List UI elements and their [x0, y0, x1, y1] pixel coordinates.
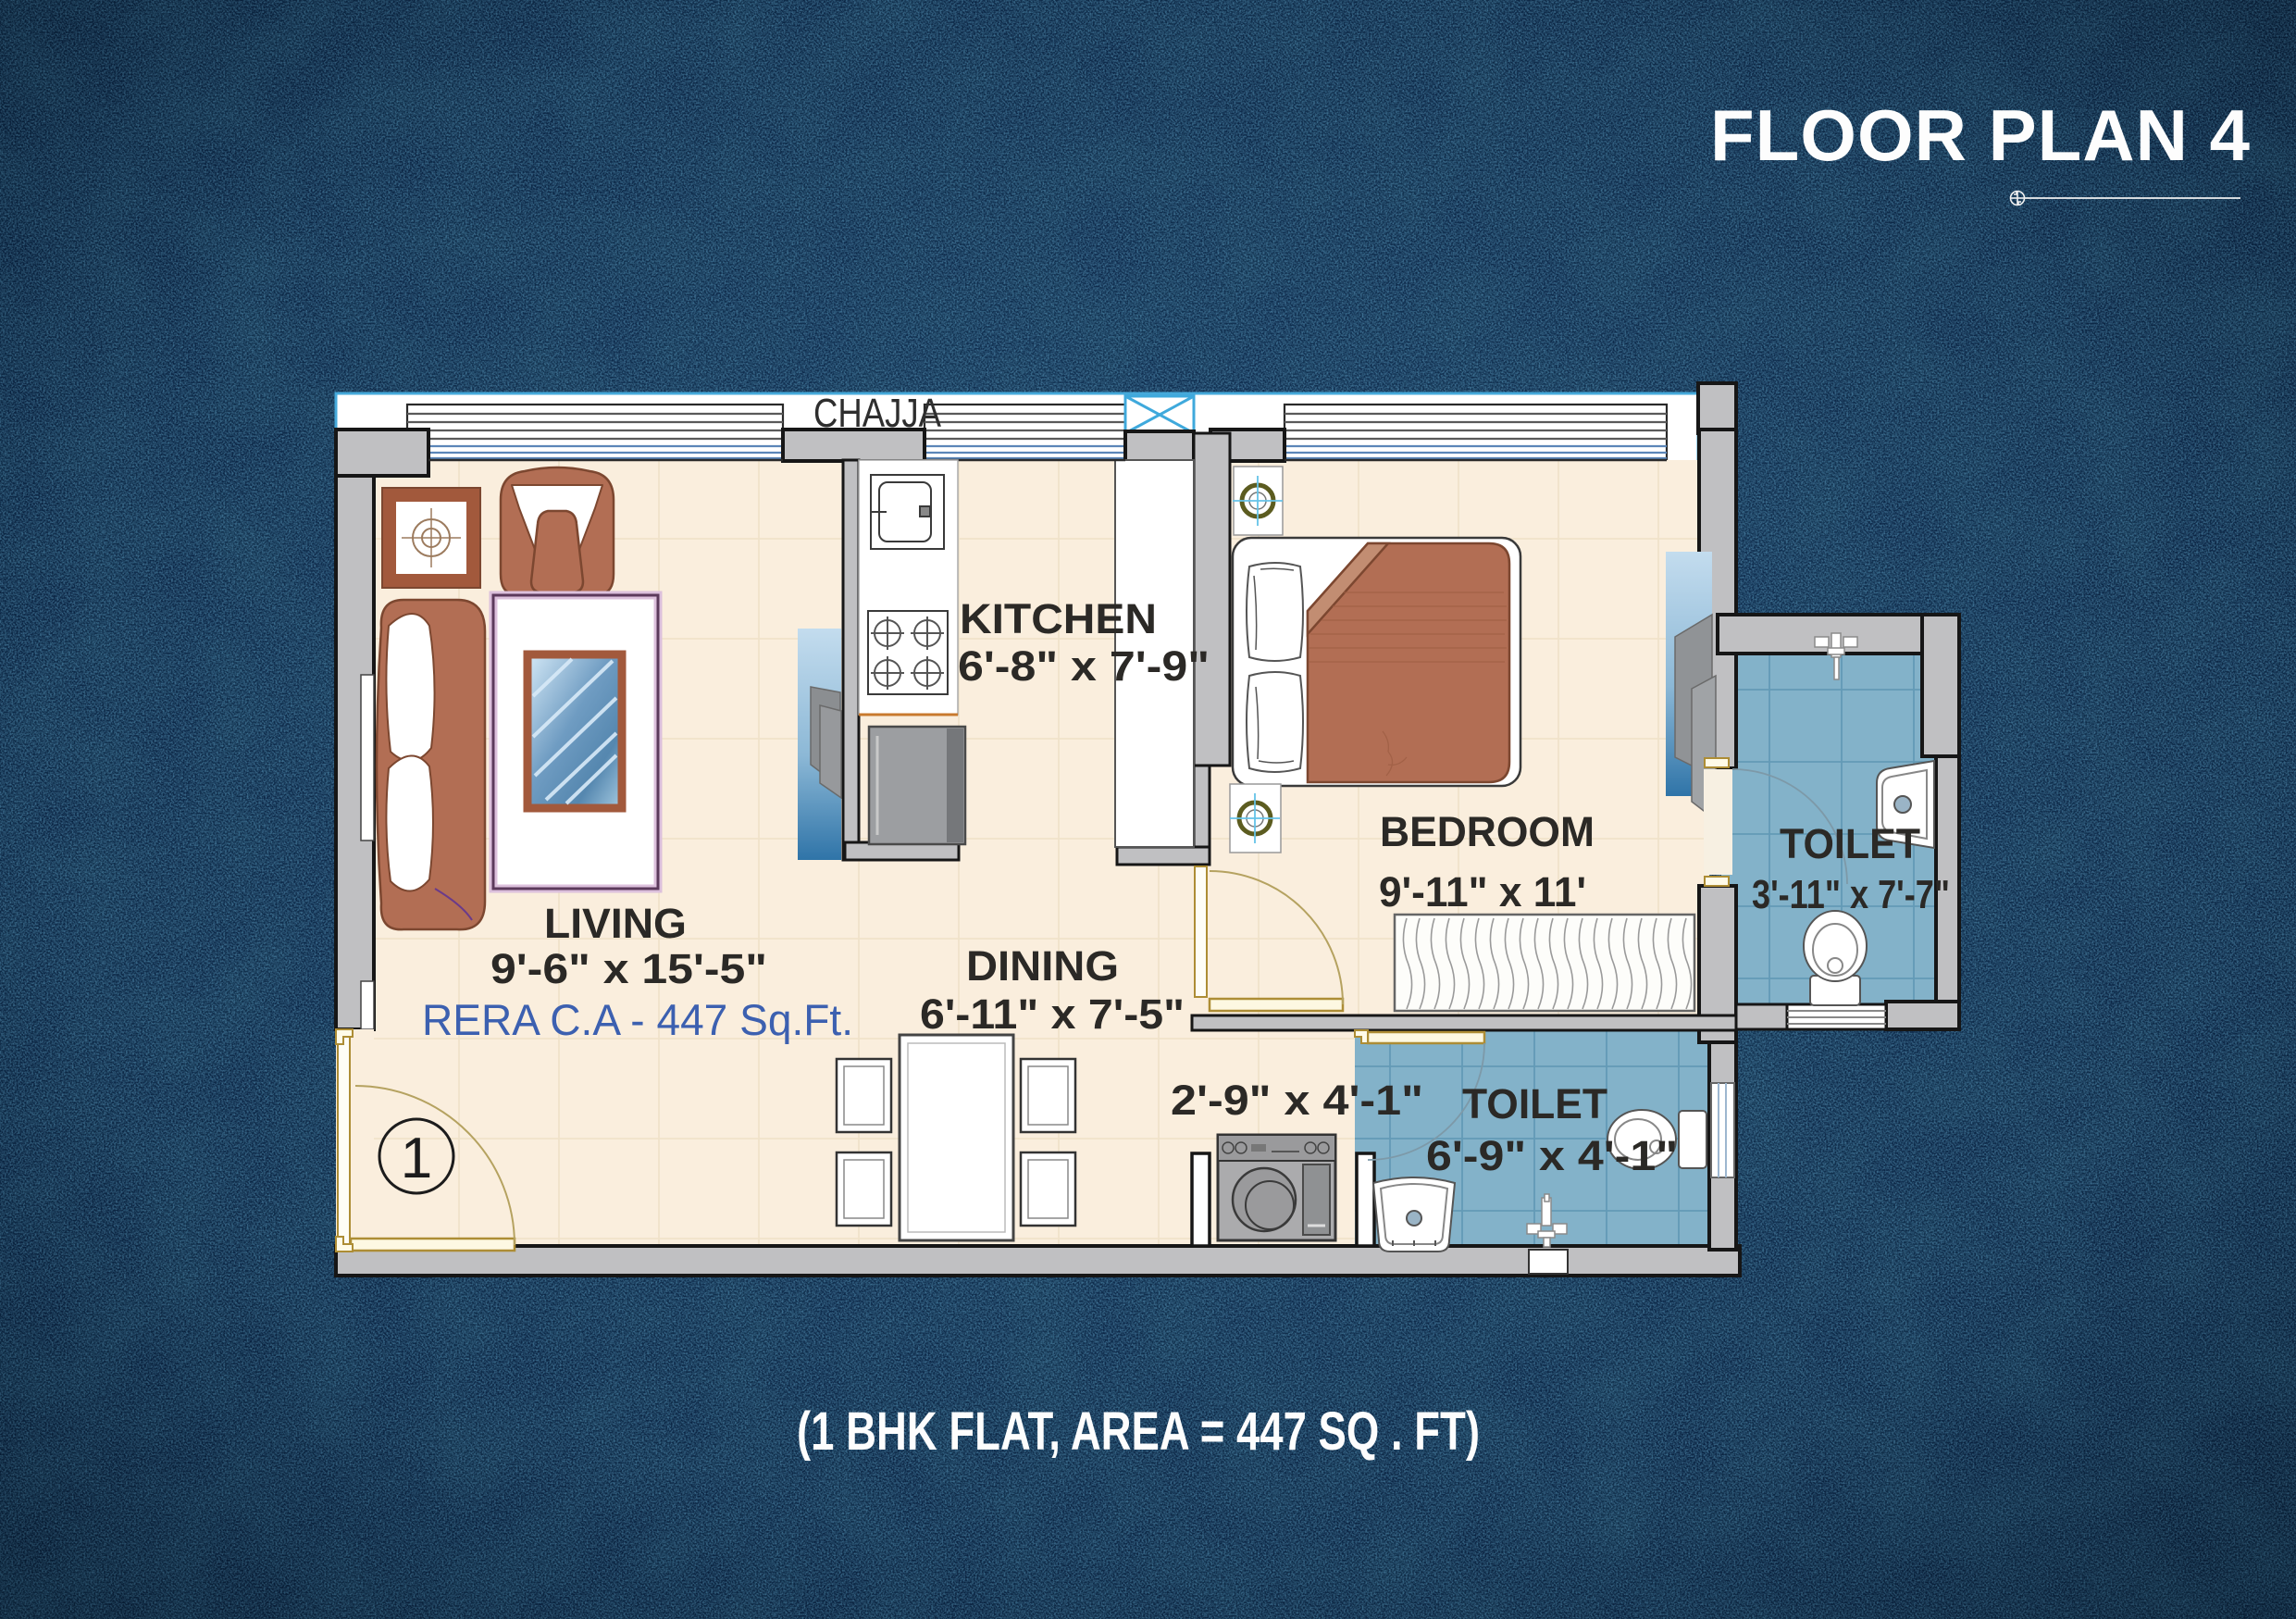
svg-text:FLOOR PLAN 4: FLOOR PLAN 4 [1710, 94, 2251, 176]
svg-text:9'-6" x 15'-5": 9'-6" x 15'-5" [490, 945, 767, 992]
svg-text:TOILET: TOILET [1462, 1080, 1607, 1127]
svg-text:2'-9" x 4'-1": 2'-9" x 4'-1" [1171, 1077, 1423, 1124]
svg-text:TOILET: TOILET [1780, 820, 1920, 867]
svg-text:RERA C.A - 447 Sq.Ft.: RERA C.A - 447 Sq.Ft. [422, 995, 853, 1044]
svg-text:BEDROOM: BEDROOM [1380, 808, 1595, 855]
svg-text:9'-11" x 11': 9'-11" x 11' [1379, 868, 1586, 915]
svg-text:(1 BHK FLAT, AREA = 447 SQ . F: (1 BHK FLAT, AREA = 447 SQ . FT) [797, 1401, 1480, 1462]
svg-text:1: 1 [401, 1127, 432, 1190]
svg-text:6'-9" x 4'-1": 6'-9" x 4'-1" [1426, 1132, 1678, 1179]
svg-text:6'-11" x 7'-5": 6'-11" x 7'-5" [920, 990, 1185, 1038]
svg-text:3'-11" x 7'-7": 3'-11" x 7'-7" [1752, 872, 1950, 917]
svg-text:DINING: DINING [966, 942, 1119, 990]
svg-text:KITCHEN: KITCHEN [960, 595, 1157, 642]
svg-text:LIVING: LIVING [544, 900, 687, 947]
svg-text:6'-8" x 7'-9": 6'-8" x 7'-9" [958, 642, 1210, 690]
